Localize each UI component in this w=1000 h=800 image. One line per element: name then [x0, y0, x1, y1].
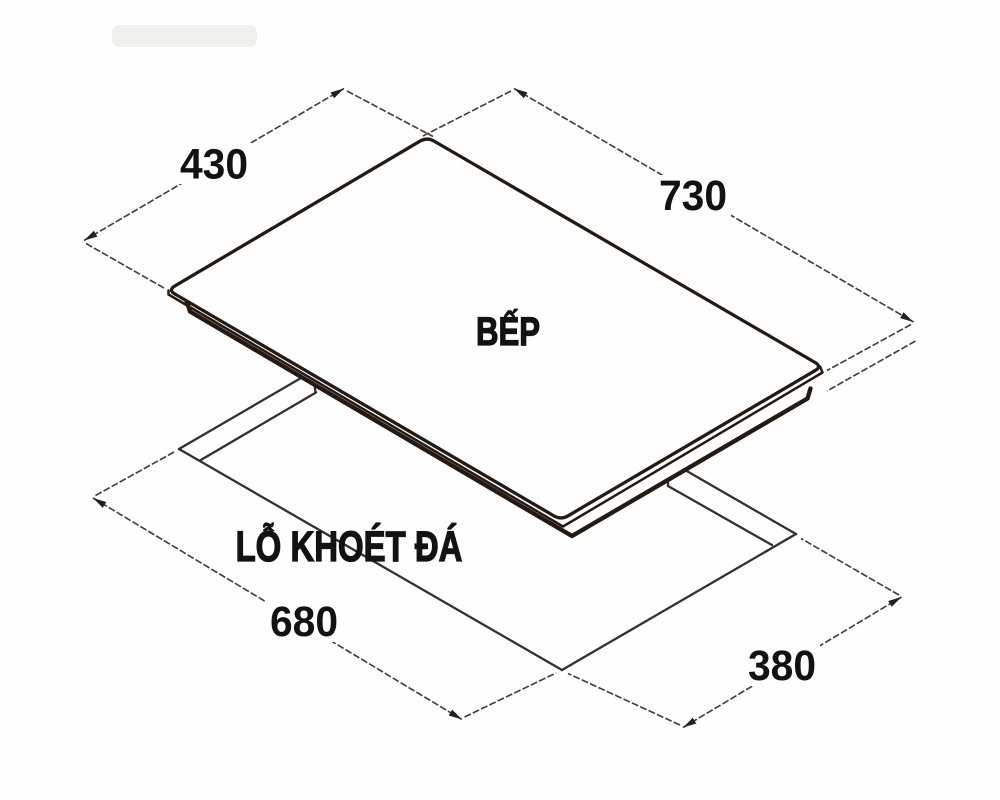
svg-text:LỖ KHOÉT ĐÁ: LỖ KHOÉT ĐÁ	[236, 521, 463, 571]
svg-text:430: 430	[180, 140, 248, 188]
svg-text:BẾP: BẾP	[476, 309, 540, 354]
svg-text:380: 380	[748, 641, 816, 689]
svg-text:680: 680	[270, 597, 338, 645]
svg-text:730: 730	[659, 171, 727, 219]
